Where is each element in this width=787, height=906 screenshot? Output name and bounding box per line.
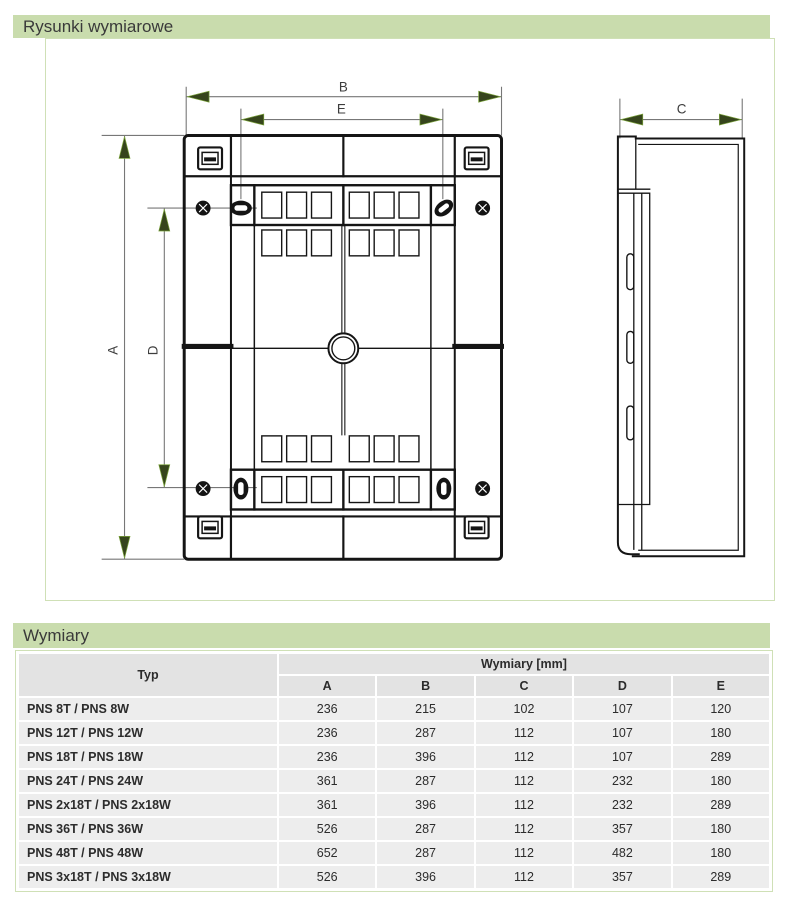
row-value: 232 xyxy=(574,770,670,792)
row-value: 287 xyxy=(377,770,473,792)
column-header-b: B xyxy=(377,676,473,696)
row-value: 526 xyxy=(279,866,375,888)
row-value: 180 xyxy=(673,722,769,744)
row-value: 180 xyxy=(673,818,769,840)
column-header-e: E xyxy=(673,676,769,696)
clip-icon xyxy=(465,147,489,169)
row-value: 112 xyxy=(476,746,572,768)
hinge-slot xyxy=(627,406,634,440)
row-value: 361 xyxy=(279,794,375,816)
table-row: PNS 18T / PNS 18W236396112107289 xyxy=(19,746,769,768)
row-value: 112 xyxy=(476,842,572,864)
row-value: 112 xyxy=(476,770,572,792)
side-view xyxy=(618,136,744,556)
row-typ: PNS 8T / PNS 8W xyxy=(19,698,277,720)
mounting-hole xyxy=(431,196,456,220)
row-value: 357 xyxy=(574,818,670,840)
row-value: 102 xyxy=(476,698,572,720)
row-value: 215 xyxy=(377,698,473,720)
row-value: 287 xyxy=(377,722,473,744)
clip-icon xyxy=(198,147,222,169)
row-value: 236 xyxy=(279,698,375,720)
row-value: 236 xyxy=(279,746,375,768)
dimension-A: A xyxy=(102,135,185,559)
dim-label-b: B xyxy=(339,80,348,95)
catalog-page: { "colors": { "section_header_bg": "#c9d… xyxy=(0,0,787,906)
dim-label-e: E xyxy=(337,102,346,117)
row-value: 107 xyxy=(574,698,670,720)
table-row: PNS 24T / PNS 24W361287112232180 xyxy=(19,770,769,792)
row-value: 180 xyxy=(673,842,769,864)
row-value: 112 xyxy=(476,794,572,816)
dimensions-table-panel: Typ Wymiary [mm] A B C D E PNS 8T / PNS … xyxy=(15,650,773,892)
row-value: 287 xyxy=(377,842,473,864)
dim-label-a: A xyxy=(106,346,121,355)
row-value: 396 xyxy=(377,746,473,768)
row-value: 289 xyxy=(673,866,769,888)
dim-label-d: D xyxy=(145,345,160,355)
table-row: PNS 12T / PNS 12W236287112107180 xyxy=(19,722,769,744)
table-row: PNS 3x18T / PNS 3x18W526396112357289 xyxy=(19,866,769,888)
row-value: 112 xyxy=(476,866,572,888)
row-value: 289 xyxy=(673,794,769,816)
dimension-C: C xyxy=(620,99,742,139)
row-typ: PNS 18T / PNS 18W xyxy=(19,746,277,768)
hinge-slot xyxy=(627,254,634,290)
row-typ: PNS 48T / PNS 48W xyxy=(19,842,277,864)
row-value: 357 xyxy=(574,866,670,888)
screw-icon xyxy=(196,201,211,216)
table-header-typ: Typ xyxy=(19,654,277,696)
row-value: 652 xyxy=(279,842,375,864)
row-value: 526 xyxy=(279,818,375,840)
row-value: 180 xyxy=(673,770,769,792)
row-value: 361 xyxy=(279,770,375,792)
section-title-dimensions: Wymiary xyxy=(13,623,770,648)
row-value: 482 xyxy=(574,842,670,864)
mounting-hole xyxy=(233,478,248,500)
table-row: PNS 8T / PNS 8W236215102107120 xyxy=(19,698,769,720)
row-typ: PNS 24T / PNS 24W xyxy=(19,770,277,792)
screw-icon xyxy=(475,201,490,216)
row-value: 107 xyxy=(574,722,670,744)
section-title-drawings: Rysunki wymiarowe xyxy=(13,15,770,38)
row-typ: PNS 2x18T / PNS 2x18W xyxy=(19,794,277,816)
front-view xyxy=(184,135,501,559)
table-row: PNS 36T / PNS 36W526287112357180 xyxy=(19,818,769,840)
row-value: 120 xyxy=(673,698,769,720)
hinge-slot xyxy=(627,331,634,363)
mounting-hole xyxy=(436,478,451,500)
row-value: 107 xyxy=(574,746,670,768)
row-value: 396 xyxy=(377,794,473,816)
column-header-a: A xyxy=(279,676,375,696)
column-header-d: D xyxy=(574,676,670,696)
dimensional-drawing: B E A D xyxy=(46,39,774,600)
clip-icon xyxy=(465,516,489,538)
row-typ: PNS 12T / PNS 12W xyxy=(19,722,277,744)
center-knockout xyxy=(328,333,358,363)
row-value: 396 xyxy=(377,866,473,888)
column-header-c: C xyxy=(476,676,572,696)
mounting-hole xyxy=(230,201,252,216)
row-value: 112 xyxy=(476,818,572,840)
dimensions-table: Typ Wymiary [mm] A B C D E PNS 8T / PNS … xyxy=(17,652,771,890)
module-windows xyxy=(262,192,419,502)
table-row: PNS 48T / PNS 48W652287112482180 xyxy=(19,842,769,864)
screw-icon xyxy=(196,481,211,496)
table-header-group: Wymiary [mm] xyxy=(279,654,769,674)
dim-label-c: C xyxy=(677,102,687,117)
row-typ: PNS 3x18T / PNS 3x18W xyxy=(19,866,277,888)
table-row: PNS 2x18T / PNS 2x18W361396112232289 xyxy=(19,794,769,816)
row-value: 236 xyxy=(279,722,375,744)
row-value: 112 xyxy=(476,722,572,744)
row-value: 232 xyxy=(574,794,670,816)
dimensions-table-body: PNS 8T / PNS 8W236215102107120PNS 12T / … xyxy=(19,698,769,888)
row-value: 287 xyxy=(377,818,473,840)
row-value: 289 xyxy=(673,746,769,768)
drawing-panel: B E A D xyxy=(45,38,775,601)
clip-icon xyxy=(198,516,222,538)
screw-icon xyxy=(475,481,490,496)
row-typ: PNS 36T / PNS 36W xyxy=(19,818,277,840)
